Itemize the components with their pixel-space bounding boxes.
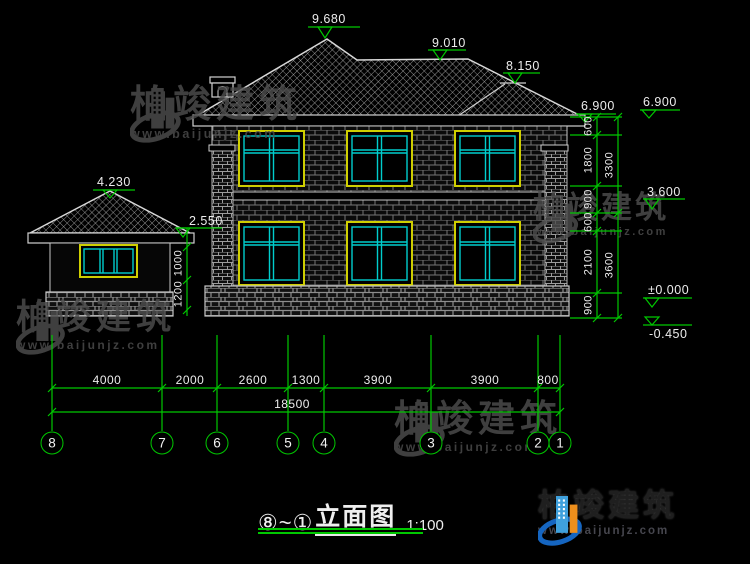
elevation-label-below-ground: -0.450 bbox=[649, 328, 687, 341]
axis-bubble-2: 2 bbox=[527, 432, 550, 455]
elevation-label-garage-eave: 2.550 bbox=[189, 215, 223, 228]
dim-label-right: 900 bbox=[584, 295, 595, 315]
dim-label-right-total: 3600 bbox=[605, 252, 616, 278]
dim-label-right: 900 bbox=[584, 189, 595, 209]
dim-label-garage: 1000 bbox=[174, 250, 185, 276]
dim-label-right-total: 3300 bbox=[605, 152, 616, 178]
dim-label-right: 600 bbox=[584, 212, 595, 232]
axis-bubble-7: 7 bbox=[151, 432, 174, 455]
dim-label-bottom: 3900 bbox=[364, 374, 393, 386]
elevation-label-eave-reference: 6.900 bbox=[643, 96, 677, 109]
elevation-label-garage-peak: 4.230 bbox=[97, 176, 131, 189]
title-underline bbox=[258, 528, 423, 530]
axis-bubble-5: 5 bbox=[277, 432, 300, 455]
elevation-label-lower-ridge: 8.150 bbox=[506, 60, 540, 73]
dim-label-bottom: 3900 bbox=[471, 374, 500, 386]
title-underline bbox=[258, 532, 423, 534]
elevation-label-ridge: 9.010 bbox=[432, 37, 466, 50]
cad-elevation-drawing: 柏竣建筑 www.baijunjz.com 柏竣建筑 www.baijunjz.… bbox=[0, 0, 750, 564]
dim-label-bottom: 4000 bbox=[93, 374, 122, 386]
dim-label-bottom: 2000 bbox=[176, 374, 205, 386]
axis-bubble-1: 1 bbox=[549, 432, 572, 455]
dim-label-right: 600 bbox=[584, 116, 595, 136]
dim-label-right: 1800 bbox=[584, 147, 595, 173]
axis-bubble-6: 6 bbox=[206, 432, 229, 455]
dim-label-bottom: 800 bbox=[537, 374, 559, 386]
elevation-label-roof-peak: 9.680 bbox=[312, 13, 346, 26]
elevation-label-eave: 6.900 bbox=[581, 100, 615, 113]
axis-bubble-4: 4 bbox=[313, 432, 336, 455]
axis-bubble-8: 8 bbox=[41, 432, 64, 455]
company-logo: 柏竣建筑 www.baijunjz.com bbox=[538, 490, 678, 537]
dimension-linework bbox=[0, 0, 750, 564]
dim-label-total-width: 18500 bbox=[274, 398, 310, 410]
elevation-label-second-floor: 3.600 bbox=[647, 186, 681, 199]
company-logo-icon bbox=[538, 490, 586, 550]
dim-label-bottom: 2600 bbox=[239, 374, 268, 386]
axis-bubble-3: 3 bbox=[420, 432, 443, 455]
elevation-label-ground-zero: ±0.000 bbox=[648, 284, 689, 297]
dim-label-right: 2100 bbox=[584, 249, 595, 275]
dim-label-garage: 1200 bbox=[174, 281, 185, 307]
dim-label-bottom: 1300 bbox=[292, 374, 321, 386]
